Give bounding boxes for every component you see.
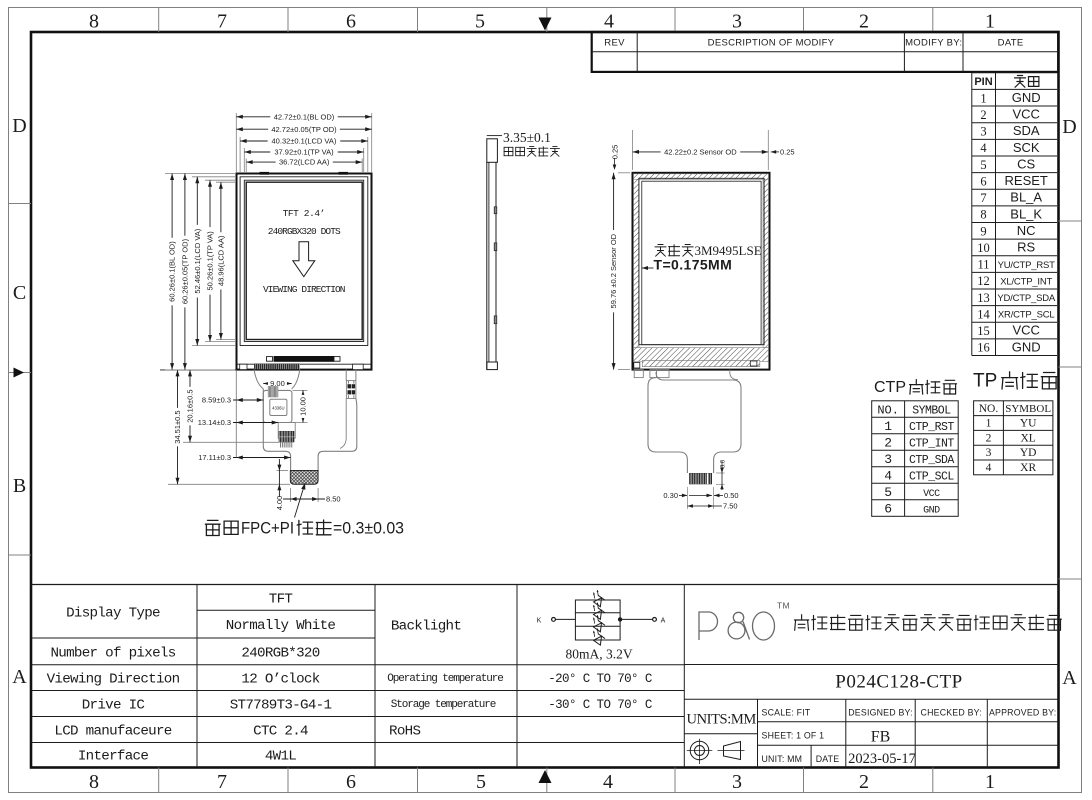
svg-text:CHECKED BY:: CHECKED BY: — [921, 708, 982, 718]
svg-text:YD/CTP_SDA: YD/CTP_SDA — [997, 293, 1056, 304]
svg-text:NC: NC — [1017, 223, 1036, 238]
svg-text:4336U: 4336U — [272, 406, 284, 411]
svg-text:0.25: 0.25 — [611, 145, 620, 160]
svg-text:SCALE: FIT: SCALE: FIT — [762, 708, 811, 718]
svg-text:GND: GND — [923, 505, 940, 516]
svg-text:YU/CTP_RST: YU/CTP_RST — [998, 260, 1056, 271]
svg-text:3: 3 — [732, 11, 742, 33]
svg-text:DATE: DATE — [816, 754, 840, 764]
svg-text:3.35±0.1: 3.35±0.1 — [503, 130, 551, 145]
svg-text:RS: RS — [1017, 240, 1035, 255]
svg-text:D: D — [12, 115, 26, 137]
svg-text:0.30: 0.30 — [663, 491, 678, 500]
svg-text:2: 2 — [980, 108, 986, 122]
svg-text:48.96(LCD AA): 48.96(LCD AA) — [216, 235, 225, 286]
svg-text:8: 8 — [980, 208, 986, 222]
svg-text:4: 4 — [980, 141, 987, 155]
svg-text:5: 5 — [884, 485, 892, 500]
svg-text:80mA, 3.2V: 80mA, 3.2V — [565, 647, 632, 662]
svg-text:PIN: PIN — [974, 76, 992, 88]
svg-text:7: 7 — [217, 11, 227, 33]
svg-text:4.00: 4.00 — [275, 496, 284, 511]
svg-text:3: 3 — [980, 125, 986, 139]
svg-text:2: 2 — [986, 432, 992, 444]
svg-text:3: 3 — [884, 452, 892, 467]
svg-text:7.50: 7.50 — [723, 502, 738, 511]
svg-text:4: 4 — [884, 468, 892, 483]
svg-text:5: 5 — [475, 11, 485, 33]
svg-text:SYMBOL: SYMBOL — [1005, 403, 1051, 415]
svg-text:13: 13 — [977, 291, 990, 305]
svg-text:240RGBX320 DOTS: 240RGBX320 DOTS — [268, 226, 341, 237]
svg-text:10.00: 10.00 — [298, 397, 307, 416]
svg-text:8.0: 8.0 — [720, 459, 726, 468]
svg-text:1: 1 — [985, 771, 995, 793]
svg-text:12 O’clock: 12 O’clock — [241, 672, 319, 688]
svg-text:BL_A: BL_A — [1010, 190, 1042, 205]
svg-text:9: 9 — [980, 224, 986, 238]
svg-text:16: 16 — [977, 341, 990, 355]
svg-text:15: 15 — [977, 324, 990, 338]
svg-text:CTP_INT: CTP_INT — [909, 437, 954, 450]
svg-text:8.50: 8.50 — [326, 495, 341, 504]
svg-text:6: 6 — [346, 11, 356, 33]
svg-text:XR/CTP_SCL: XR/CTP_SCL — [998, 310, 1055, 321]
svg-text:RoHS: RoHS — [389, 724, 420, 740]
svg-text:8: 8 — [89, 771, 99, 793]
svg-text:60.26±0.1(BL OD): 60.26±0.1(BL OD) — [168, 241, 177, 302]
svg-text:VCC: VCC — [923, 489, 940, 500]
svg-text:FB: FB — [871, 729, 891, 746]
svg-text:A: A — [12, 666, 27, 688]
svg-text:36.72(LCD AA): 36.72(LCD AA) — [279, 158, 330, 167]
svg-text:B: B — [13, 475, 26, 497]
svg-text:6: 6 — [884, 501, 892, 516]
svg-text:K: K — [537, 618, 542, 625]
svg-text:C: C — [13, 282, 26, 304]
svg-text:TP: TP — [973, 371, 997, 392]
svg-text:SCK: SCK — [1013, 140, 1040, 155]
svg-text:7: 7 — [980, 191, 986, 205]
svg-text:Drive IC: Drive IC — [82, 698, 145, 714]
svg-text:CTP_SDA: CTP_SDA — [909, 454, 954, 467]
svg-text:XL/CTP_INT: XL/CTP_INT — [1000, 276, 1052, 287]
svg-text:2023-05-17: 2023-05-17 — [848, 751, 916, 767]
svg-text:37.92±0.1(TP VA): 37.92±0.1(TP VA) — [274, 148, 334, 157]
svg-text:DATE: DATE — [998, 38, 1024, 49]
svg-text:10: 10 — [977, 241, 990, 255]
svg-text:8: 8 — [89, 11, 99, 33]
svg-text:Interface: Interface — [78, 749, 149, 765]
svg-text:CTP_SCL: CTP_SCL — [909, 470, 954, 483]
svg-text:ST7789T3-G4-1: ST7789T3-G4-1 — [230, 698, 332, 714]
svg-text:1: 1 — [884, 419, 892, 434]
svg-text:FPC+PI: FPC+PI — [241, 520, 294, 538]
svg-text:3: 3 — [986, 447, 992, 459]
svg-text:SDA: SDA — [1013, 123, 1040, 138]
svg-text:4: 4 — [604, 11, 614, 33]
svg-text:0.50: 0.50 — [724, 491, 739, 500]
svg-text:13.14±0.3: 13.14±0.3 — [198, 418, 231, 427]
svg-text:0.25: 0.25 — [780, 147, 795, 156]
svg-text:BL_K: BL_K — [1010, 206, 1042, 221]
svg-text:VCC: VCC — [1012, 106, 1039, 121]
svg-text:40.32±0.1(LCD VA): 40.32±0.1(LCD VA) — [272, 137, 337, 146]
svg-text:GND: GND — [1012, 90, 1041, 105]
svg-text:2: 2 — [859, 771, 869, 793]
svg-text:XR: XR — [1020, 462, 1036, 474]
svg-text:UNIT: MM: UNIT: MM — [762, 754, 803, 764]
svg-text:11: 11 — [977, 258, 989, 272]
svg-text:A: A — [1062, 667, 1077, 689]
svg-text:SYMBOL: SYMBOL — [912, 404, 951, 417]
svg-text:8.59±0.3: 8.59±0.3 — [202, 396, 231, 405]
svg-text:LCD manufaceure: LCD manufaceure — [54, 724, 171, 740]
svg-text:VCC: VCC — [1012, 323, 1039, 338]
svg-text:MODIFY BY:: MODIFY BY: — [905, 38, 962, 49]
svg-text:4W1L: 4W1L — [265, 749, 296, 765]
svg-text:5: 5 — [980, 158, 986, 172]
svg-text:=0.3±0.03: =0.3±0.03 — [333, 520, 404, 538]
svg-text:D: D — [1062, 116, 1076, 138]
svg-text:42.72±0.05(TP OD): 42.72±0.05(TP OD) — [271, 125, 337, 134]
svg-text:Normally White: Normally White — [226, 618, 336, 634]
svg-text:6: 6 — [980, 174, 986, 188]
svg-text:P024C128-CTP: P024C128-CTP — [835, 672, 962, 693]
svg-text:Number of pixels: Number of pixels — [50, 645, 175, 661]
svg-text:12: 12 — [977, 274, 990, 288]
svg-text:42.22±0.2 Sensor OD: 42.22±0.2 Sensor OD — [664, 148, 737, 157]
svg-text:DESIGNED BY:: DESIGNED BY: — [848, 708, 913, 718]
svg-text:7: 7 — [217, 771, 227, 793]
svg-text:REV: REV — [604, 38, 625, 49]
svg-text:Display Type: Display Type — [66, 605, 160, 621]
svg-text:Backlight: Backlight — [391, 619, 462, 635]
svg-text:52.46±0.1(LCD VA): 52.46±0.1(LCD VA) — [193, 228, 202, 293]
svg-text:SHEET: 1 OF 1: SHEET: 1 OF 1 — [762, 731, 825, 741]
svg-text:4: 4 — [603, 771, 613, 793]
svg-text:NO.: NO. — [979, 403, 999, 415]
svg-text:17.11±0.3: 17.11±0.3 — [198, 453, 231, 462]
svg-text:14: 14 — [977, 307, 990, 321]
svg-text:YU: YU — [1020, 418, 1037, 430]
svg-text:4: 4 — [986, 462, 992, 474]
svg-text:RESET: RESET — [1005, 173, 1048, 188]
svg-text:59.76 ±0.2 Sensor OD: 59.76 ±0.2 Sensor OD — [609, 233, 618, 308]
svg-text:UNITS:MM: UNITS:MM — [687, 712, 757, 728]
svg-text:3: 3 — [732, 771, 742, 793]
svg-text:1: 1 — [986, 418, 992, 430]
svg-text:VIEWING DIRECTION: VIEWING DIRECTION — [263, 284, 345, 295]
svg-text:Viewing Direction: Viewing Direction — [47, 672, 180, 688]
svg-text:GND: GND — [1012, 339, 1041, 354]
svg-text:1: 1 — [985, 11, 995, 33]
svg-text:2: 2 — [884, 435, 892, 450]
svg-text:2: 2 — [859, 11, 869, 33]
svg-text:-30° C TO 70° C: -30° C TO 70° C — [548, 698, 652, 712]
svg-text:Operating temperature: Operating temperature — [387, 673, 503, 685]
svg-text:5: 5 — [476, 771, 486, 793]
svg-text:APPROVED BY:: APPROVED BY: — [989, 708, 1056, 718]
svg-text:TM: TM — [777, 601, 790, 611]
svg-text:CTC 2.4: CTC 2.4 — [253, 724, 308, 740]
svg-text:T=0.175MM: T=0.175MM — [654, 257, 733, 273]
svg-text:50.26±0.1(TP VA): 50.26±0.1(TP VA) — [205, 231, 214, 291]
svg-text:-20° C TO 70° C: -20° C TO 70° C — [548, 672, 652, 686]
svg-text:6: 6 — [346, 771, 356, 793]
svg-text:NO.: NO. — [877, 403, 899, 417]
svg-text:34.51±0.5: 34.51±0.5 — [173, 410, 182, 443]
svg-text:DESCRIPTION OF MODIFY: DESCRIPTION OF MODIFY — [708, 38, 835, 49]
svg-text:TFT: TFT — [269, 591, 293, 607]
svg-text:Storage temperature: Storage temperature — [391, 699, 496, 711]
svg-text:CTP: CTP — [874, 379, 906, 396]
svg-text:XL: XL — [1020, 432, 1035, 444]
svg-text:CTP_RST: CTP_RST — [909, 421, 954, 434]
svg-text:TFT 2.4’: TFT 2.4’ — [283, 208, 325, 219]
svg-text:A: A — [661, 618, 666, 625]
svg-text:CS: CS — [1017, 156, 1035, 171]
svg-text:240RGB*320: 240RGB*320 — [241, 645, 319, 661]
svg-text:42.72±0.1(BL OD): 42.72±0.1(BL OD) — [274, 112, 335, 121]
svg-text:60.26±0.05(TP OD): 60.26±0.05(TP OD) — [180, 238, 189, 304]
svg-text:20.16±0.5: 20.16±0.5 — [185, 389, 194, 422]
svg-text:1: 1 — [980, 91, 986, 105]
svg-text:YD: YD — [1020, 447, 1037, 459]
